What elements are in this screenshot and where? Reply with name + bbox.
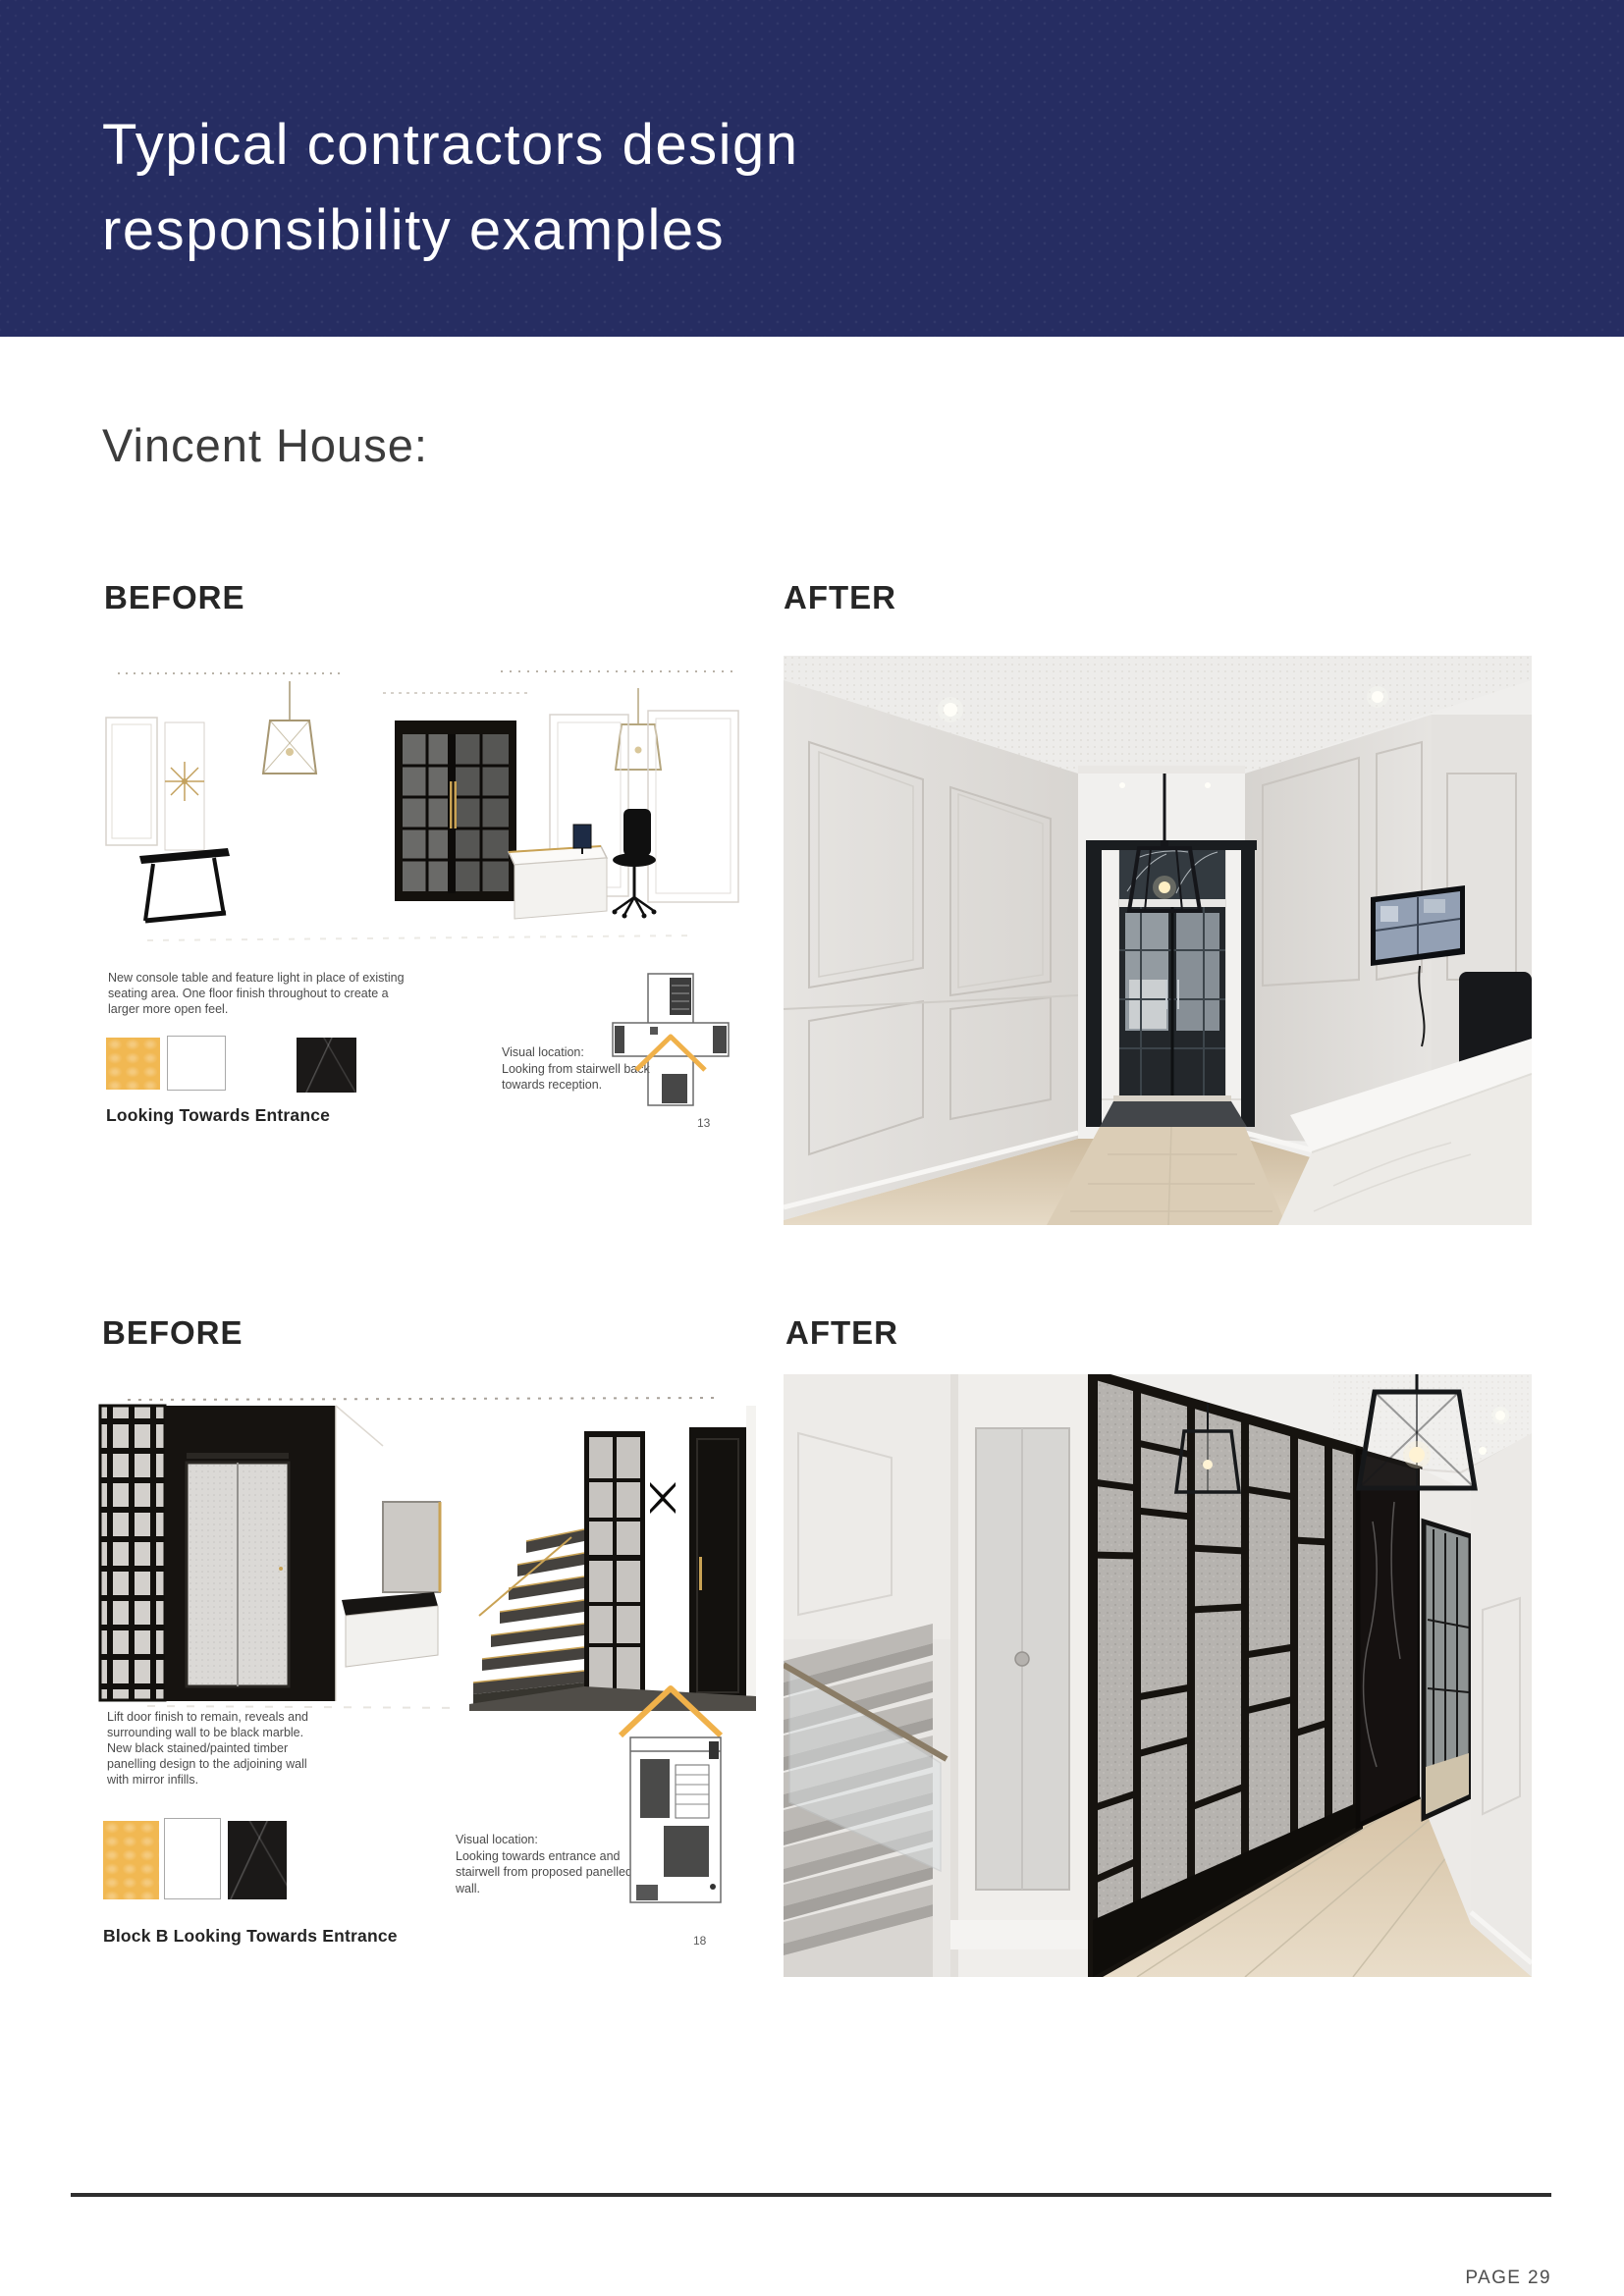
design-note: New console table and feature light in p… (108, 970, 417, 1017)
footer-page-number: PAGE 29 (1306, 2268, 1551, 2289)
source-page-number: 13 (697, 1116, 710, 1130)
sketch-console-table (139, 848, 230, 921)
design-note: Lift door finish to remain, reveals and … (107, 1709, 311, 1788)
before-panel-row1: New console table and feature light in p… (88, 640, 756, 1143)
entrance-door-assembly (1078, 774, 1257, 1139)
footer-rule (71, 2193, 1551, 2197)
after-photo-lift-corridor-art (784, 1374, 1532, 1977)
after-photo-lift-corridor (784, 1374, 1532, 1977)
floor-plan-thumbnail (607, 968, 734, 1111)
project-subtitle: Vincent House: (102, 418, 428, 472)
page-title: Typical contractors design responsibilit… (102, 102, 799, 273)
page-title-line2: responsibility examples (102, 187, 799, 273)
black-marble-lift (1358, 1451, 1420, 1826)
left-wall (784, 680, 1078, 1220)
sketch-left-wall-panels (106, 718, 204, 850)
sketch-right-door (689, 1406, 756, 1704)
sketch-caption: Block B Looking Towards Entrance (103, 1926, 398, 1947)
after-photo-entrance-hallway-art (784, 656, 1532, 1225)
sketch-stairs (473, 1529, 584, 1711)
material-swatch-white (164, 1818, 221, 1899)
sketch-nook (336, 1406, 471, 1701)
before-panel-row2: Lift door finish to remain, reveals and … (88, 1374, 756, 1955)
open-door-leaf-right (1241, 848, 1255, 1127)
source-page-number: 18 (693, 1934, 706, 1948)
before-sketch-lift-lobby (88, 1392, 756, 1711)
white-column (950, 1374, 1093, 1977)
before-label-row1: BEFORE (104, 579, 245, 616)
document-page: Typical contractors design responsibilit… (0, 0, 1624, 2296)
after-photo-entrance-hallway (784, 656, 1532, 1225)
open-door-leaf-left (1086, 848, 1102, 1127)
sketch-pendant-lantern-right (616, 688, 661, 770)
material-swatch-white (167, 1036, 226, 1091)
page-title-line1: Typical contractors design (102, 102, 799, 187)
before-sketch-reception (88, 664, 756, 960)
sketch-glazed-screen-door (584, 1431, 645, 1696)
header-band: Typical contractors design responsibilit… (0, 0, 1624, 337)
sketch-black-double-door (395, 721, 516, 901)
material-swatch-brass (106, 1038, 160, 1090)
tall-mirror (1424, 1522, 1471, 1818)
sketch-pendant-lantern-left (263, 681, 316, 774)
right-wall (1471, 1433, 1532, 1977)
material-swatch-black-marble (228, 1821, 287, 1899)
before-label-row2: BEFORE (102, 1314, 244, 1352)
after-label-row1: AFTER (784, 579, 896, 616)
sketch-starburst-mirror (165, 762, 204, 801)
sketch-lift-door (187, 1453, 289, 1686)
material-swatch-black-marble (297, 1038, 356, 1093)
entrance-mat (1100, 1101, 1247, 1127)
view-direction-arrow (621, 1688, 721, 1735)
floor-plan-thumbnail (607, 1679, 734, 1910)
staircase (784, 1374, 950, 1977)
after-label-row2: AFTER (785, 1314, 898, 1352)
pendant-lantern-large (1359, 1374, 1475, 1488)
sketch-caption: Looking Towards Entrance (106, 1105, 330, 1126)
sketch-grid-screen (100, 1406, 165, 1700)
material-swatch-brass (103, 1821, 159, 1899)
